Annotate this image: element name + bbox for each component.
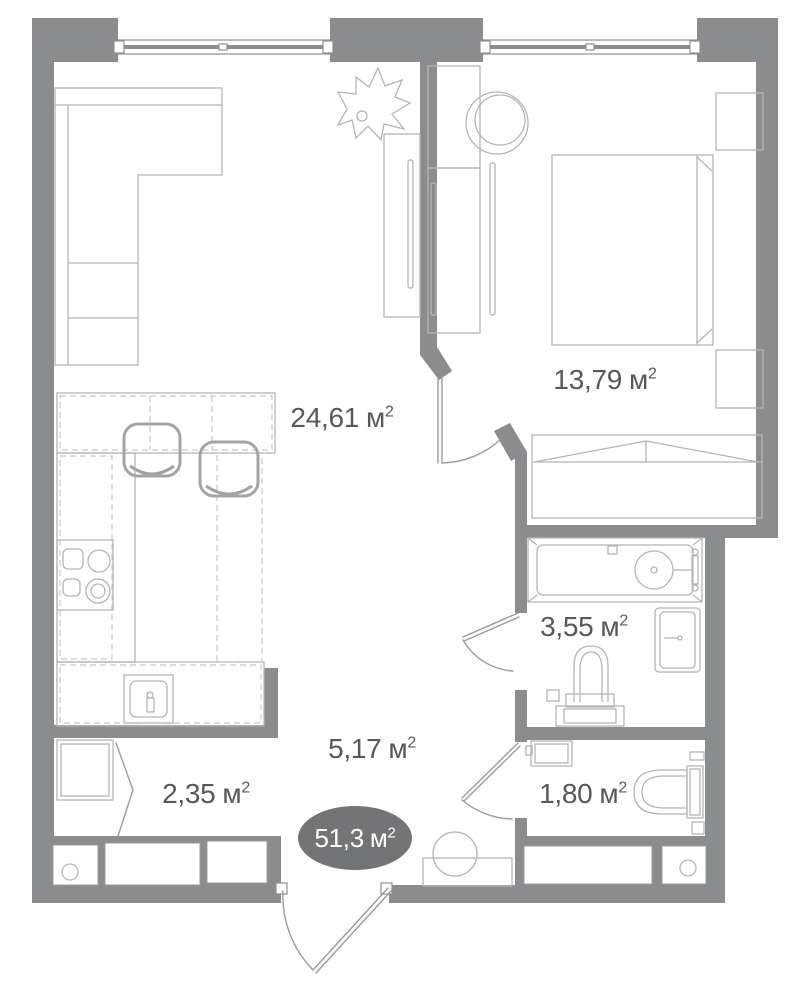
tv-console-icon bbox=[384, 134, 420, 317]
area-value: 3,55 bbox=[540, 611, 593, 642]
area-label-bathroom: 3,55м2 bbox=[540, 611, 628, 643]
area-label-living-kitchen: 24,61м2 bbox=[290, 402, 393, 434]
bedroom-door-icon bbox=[438, 377, 501, 463]
area-label-bedroom: 13,79м2 bbox=[553, 364, 656, 396]
sofa-icon bbox=[55, 88, 222, 365]
entrance-door-icon bbox=[276, 883, 392, 973]
wc-toilet-icon bbox=[634, 752, 704, 834]
area-label-hallway: 5,17м2 bbox=[328, 733, 416, 765]
area-value: 13,79 bbox=[553, 364, 622, 395]
bed-icon bbox=[552, 155, 713, 345]
toilet-icon bbox=[547, 646, 614, 707]
pouf-icon bbox=[433, 832, 477, 876]
wardrobe-icon bbox=[428, 66, 495, 333]
bathroom-door-icon bbox=[463, 613, 519, 671]
wc-door-icon bbox=[462, 743, 520, 819]
area-value: 1,80 bbox=[539, 778, 592, 809]
area-label-storage: 2,35м2 bbox=[162, 778, 250, 810]
bathtub-icon bbox=[528, 538, 702, 602]
storage-closet-icon bbox=[57, 740, 133, 836]
plant-icon bbox=[338, 68, 410, 140]
wc-sink-icon bbox=[526, 741, 572, 766]
vanity-sink-icon bbox=[556, 706, 624, 726]
closet-icon bbox=[532, 435, 762, 518]
floor-plan: 24,61м2 13,79м2 3,55м2 5,17м2 2,35м2 1,8… bbox=[0, 0, 800, 990]
total-area-value: 51,3 bbox=[314, 823, 363, 854]
area-value: 24,61 bbox=[290, 402, 359, 433]
area-value: 2,35 bbox=[162, 778, 215, 809]
water-heater-cabinet-icon bbox=[655, 608, 700, 672]
armchair-icon bbox=[466, 92, 528, 154]
nightstand-icon bbox=[716, 93, 763, 408]
area-value: 5,17 bbox=[328, 733, 381, 764]
tv-icon bbox=[408, 160, 413, 288]
total-area-badge: 51,3м2 bbox=[298, 806, 412, 870]
area-label-wc: 1,80м2 bbox=[539, 778, 627, 810]
kitchen-sink-icon bbox=[124, 675, 173, 723]
bar-stool-icon bbox=[124, 424, 258, 496]
cooktop-icon bbox=[57, 540, 113, 610]
